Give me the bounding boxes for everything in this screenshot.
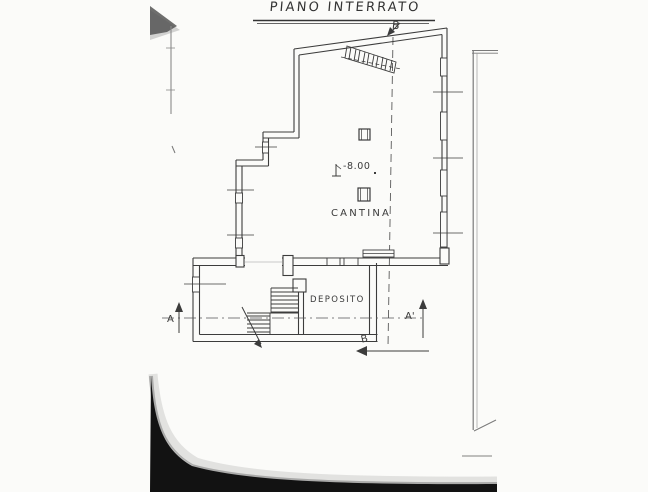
- top-staircase: [341, 46, 401, 73]
- section-marker-arrows: [175, 23, 429, 356]
- level-annotation: -8.00: [343, 161, 371, 172]
- right-boundary-line: [462, 51, 498, 457]
- section-label-a-right: A': [405, 311, 415, 322]
- page-title: PIANO INTERRATO: [249, 0, 440, 15]
- right-wall-windows: [433, 58, 463, 247]
- room-label-cantina: CANTINA: [331, 208, 391, 219]
- scan-artifact-shadow: [150, 374, 497, 492]
- section-label-b-top: B: [391, 19, 400, 33]
- scan-artifact-fold: [150, 6, 180, 153]
- section-line-b: [388, 37, 393, 347]
- scanned-floor-plan-page: PIANO INTERRATO B -8.00 CANTINA DEPOSITO…: [0, 0, 648, 492]
- section-label-a-left: A: [167, 314, 174, 325]
- room-label-deposito: DEPOSITO: [310, 295, 365, 305]
- title-underline: [253, 21, 435, 24]
- floor-plan-drawing: [0, 0, 648, 492]
- wall-piers: [236, 248, 449, 292]
- left-wall-windows: [184, 142, 277, 292]
